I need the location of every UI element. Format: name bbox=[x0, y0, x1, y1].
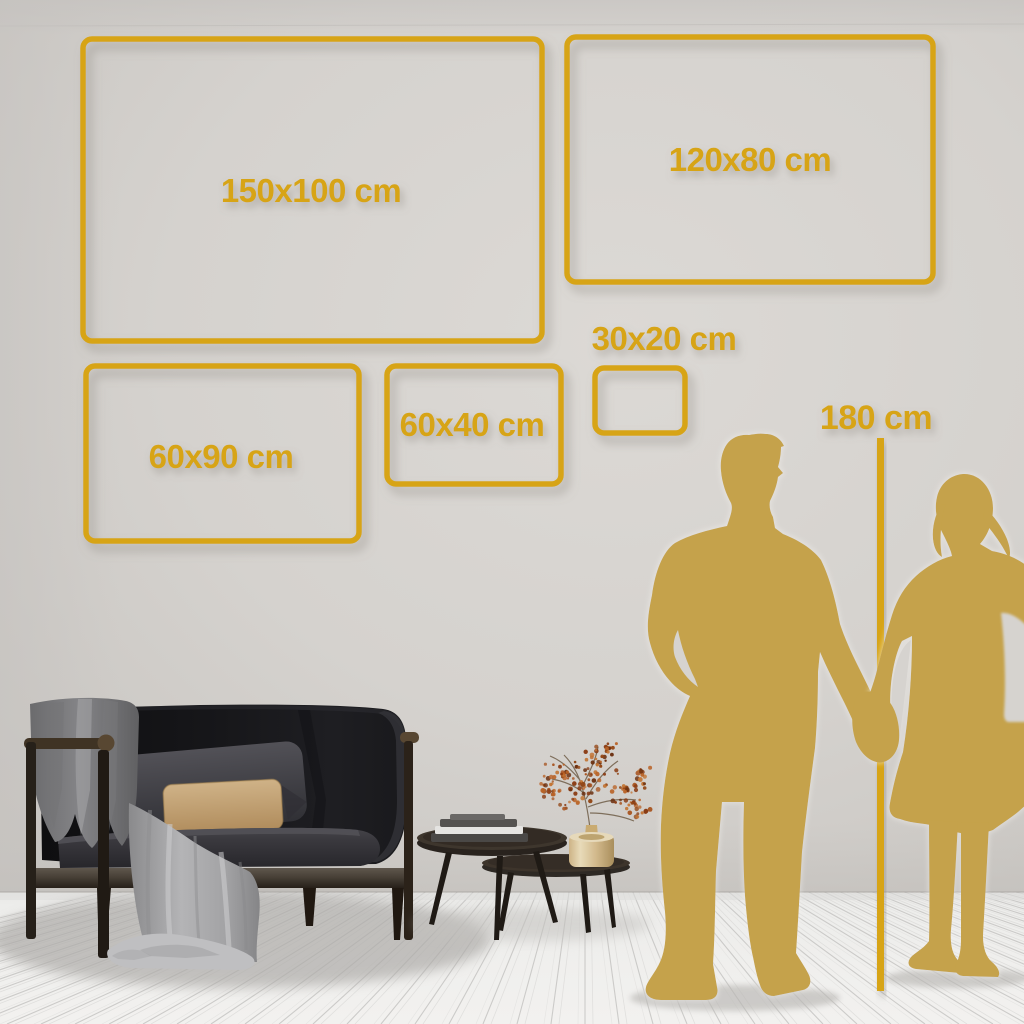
svg-text:180 cm: 180 cm bbox=[820, 399, 932, 437]
svg-text:120x80 cm: 120x80 cm bbox=[669, 141, 831, 178]
svg-text:60x90 cm: 60x90 cm bbox=[149, 438, 294, 475]
svg-text:30x20 cm: 30x20 cm bbox=[592, 320, 737, 357]
svg-text:150x100 cm: 150x100 cm bbox=[221, 172, 401, 209]
svg-text:60x40 cm: 60x40 cm bbox=[400, 406, 545, 443]
